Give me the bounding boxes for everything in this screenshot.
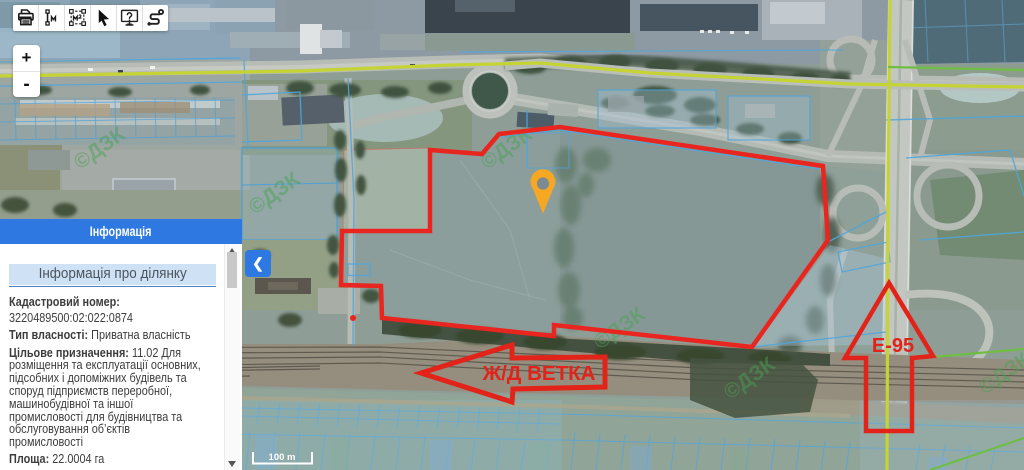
- svg-text:Е-95: Е-95: [872, 335, 914, 357]
- svg-text:Ж/Д ВЕТКА: Ж/Д ВЕТКА: [482, 362, 596, 385]
- svg-text:100 m: 100 m: [269, 452, 296, 463]
